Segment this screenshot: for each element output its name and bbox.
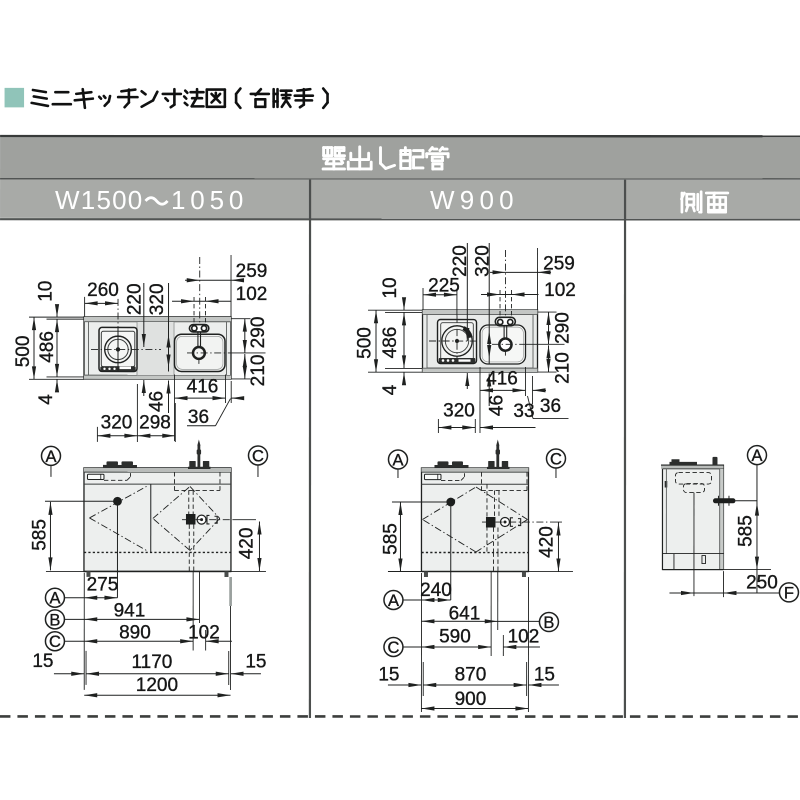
svg-text:1200: 1200 <box>136 675 178 696</box>
svg-text:C: C <box>550 451 562 469</box>
svg-text:220: 220 <box>124 283 145 315</box>
svg-text:420: 420 <box>537 526 558 558</box>
svg-text:590: 590 <box>439 627 471 648</box>
svg-text:46: 46 <box>487 395 508 416</box>
svg-text:641: 641 <box>449 604 481 625</box>
svg-text:486: 486 <box>37 331 58 363</box>
svg-text:486: 486 <box>380 327 401 359</box>
svg-text:260: 260 <box>87 280 119 301</box>
svg-text:A: A <box>49 590 60 608</box>
svg-text:320: 320 <box>443 401 475 422</box>
svg-text:220: 220 <box>450 245 471 277</box>
svg-text:298: 298 <box>139 412 171 433</box>
svg-text:890: 890 <box>119 622 151 643</box>
svg-text:900: 900 <box>455 689 487 710</box>
svg-text:33: 33 <box>513 401 534 422</box>
svg-text:320: 320 <box>147 283 168 315</box>
svg-text:585: 585 <box>736 515 757 547</box>
svg-text:416: 416 <box>486 368 518 389</box>
svg-text:W900: W900 <box>430 185 519 215</box>
svg-text:259: 259 <box>543 253 575 274</box>
svg-text:420: 420 <box>237 528 258 560</box>
svg-text:15: 15 <box>534 665 555 686</box>
svg-text:320: 320 <box>473 245 494 277</box>
svg-text:500: 500 <box>355 327 376 359</box>
svg-text:500: 500 <box>13 336 34 368</box>
svg-text:290: 290 <box>248 317 269 349</box>
svg-text:15: 15 <box>245 651 266 672</box>
svg-text:46: 46 <box>147 391 168 412</box>
svg-text:1170: 1170 <box>132 652 173 673</box>
svg-text:C: C <box>252 447 264 465</box>
svg-text:36: 36 <box>540 396 561 417</box>
svg-text:W1500: W1500 <box>55 185 143 215</box>
svg-text:585: 585 <box>381 523 402 555</box>
svg-text:585: 585 <box>30 519 51 551</box>
svg-text:210: 210 <box>248 355 269 387</box>
svg-text:B: B <box>543 614 554 632</box>
svg-text:A: A <box>388 592 399 610</box>
svg-text:210: 210 <box>553 352 574 384</box>
svg-text:15: 15 <box>32 651 53 672</box>
svg-text:A: A <box>45 448 56 466</box>
svg-text:A: A <box>392 451 403 469</box>
svg-text:F: F <box>784 584 794 602</box>
svg-text:250: 250 <box>746 573 778 594</box>
svg-text:C: C <box>387 639 399 657</box>
svg-text:320: 320 <box>101 412 133 433</box>
svg-text:102: 102 <box>508 627 540 648</box>
svg-text:870: 870 <box>455 665 487 686</box>
svg-text:36: 36 <box>188 407 209 428</box>
svg-text:B: B <box>49 611 60 629</box>
svg-text:102: 102 <box>236 284 268 305</box>
svg-text:A: A <box>751 447 762 465</box>
svg-text:941: 941 <box>114 601 146 622</box>
svg-text:4: 4 <box>380 384 401 395</box>
svg-text:10: 10 <box>380 277 401 298</box>
svg-text:290: 290 <box>553 312 574 344</box>
svg-text:416: 416 <box>187 376 219 397</box>
svg-text:4: 4 <box>36 394 57 405</box>
svg-text:240: 240 <box>420 580 452 601</box>
svg-text:1050: 1050 <box>171 185 248 215</box>
svg-text:15: 15 <box>378 664 399 685</box>
svg-text:275: 275 <box>87 575 119 596</box>
svg-text:10: 10 <box>36 281 57 302</box>
svg-text:259: 259 <box>236 261 268 282</box>
svg-text:102: 102 <box>188 622 220 643</box>
svg-text:102: 102 <box>544 280 576 301</box>
svg-text:C: C <box>49 633 61 651</box>
svg-text:225: 225 <box>428 276 460 297</box>
